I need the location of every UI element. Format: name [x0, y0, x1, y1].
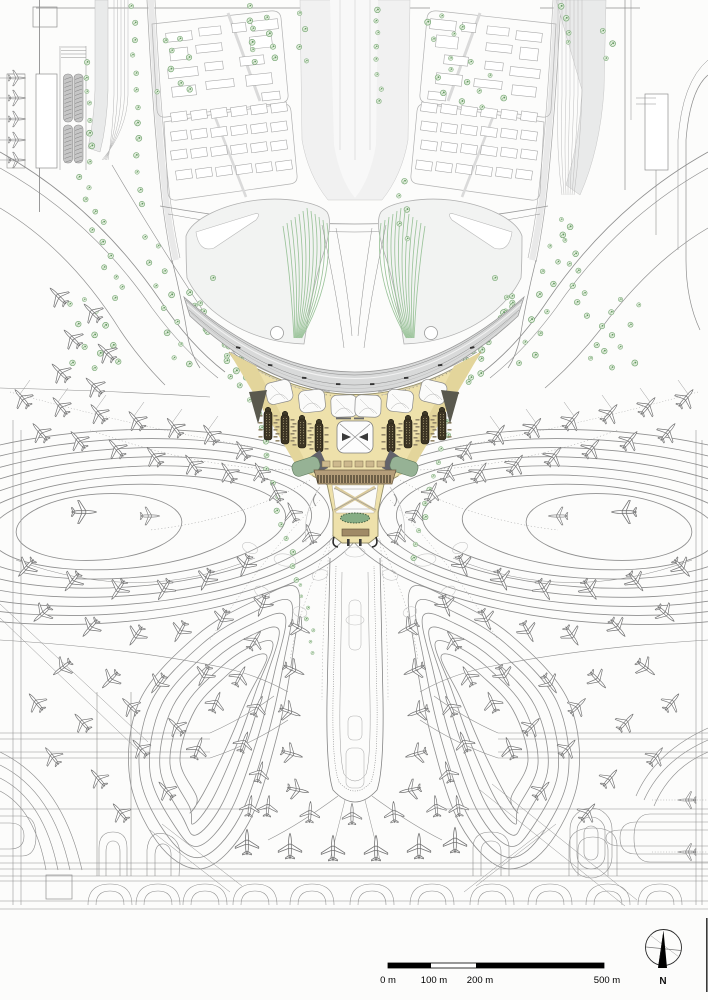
svg-text:N: N	[659, 976, 666, 987]
svg-text:100 m: 100 m	[421, 975, 447, 986]
svg-text:200 m: 200 m	[467, 975, 493, 986]
svg-text:500 m: 500 m	[594, 975, 620, 986]
svg-text:0 m: 0 m	[380, 975, 396, 986]
